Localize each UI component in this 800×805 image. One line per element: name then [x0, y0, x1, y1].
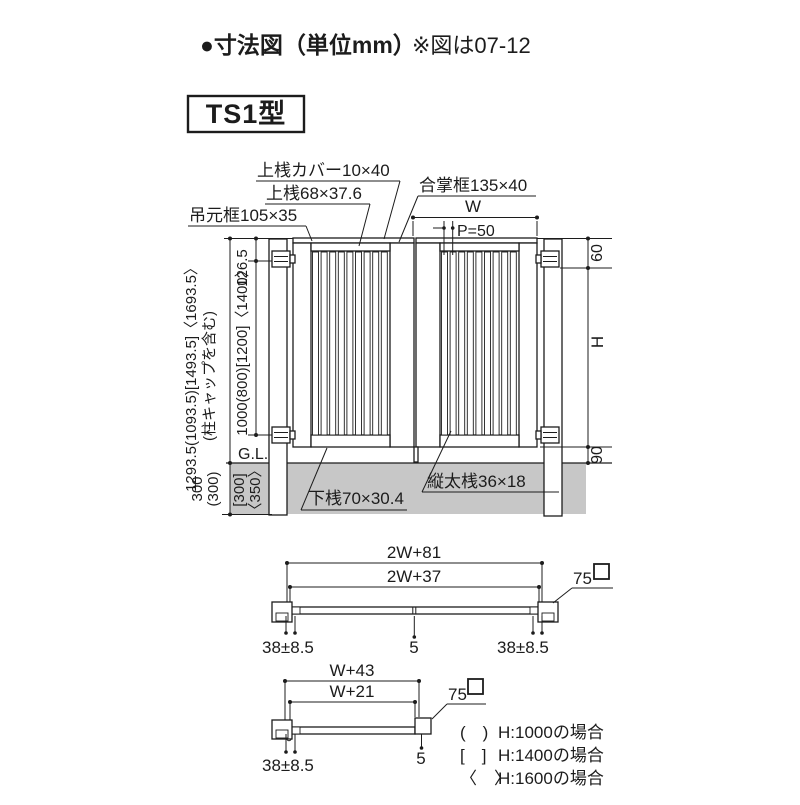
label-top-rail: 上桟68×37.6	[266, 184, 362, 203]
center-drop-rod	[414, 447, 418, 462]
dimension-drawing-page: ●寸法図（単位mm） ※図は07-12 TS1型	[0, 0, 800, 800]
legend-row3-label: H:1600の場合	[498, 769, 604, 788]
post-section-symbol-single	[468, 679, 483, 694]
dim-leaf-width: W	[465, 197, 481, 216]
dimension-diagram-svg: ●寸法図（単位mm） ※図は07-12 TS1型	[0, 0, 800, 800]
dim-single-gap-left: 38±8.5	[262, 756, 314, 775]
hinge-upper-right	[536, 251, 559, 267]
title-main: ●寸法図（単位mm）	[200, 32, 416, 58]
dim-height: H	[588, 336, 607, 348]
dim-top-offset: 60	[589, 244, 606, 262]
left-bottom-rail	[311, 435, 390, 447]
plan-view-double: 2W+81 2W+37 75 38±8.5 5	[262, 543, 613, 657]
label-top-rail-cover: 上桟カバー10×40	[257, 161, 390, 180]
left-dimensions: 1293.5(1093.5)[1493.5]〈1693.5〉 (柱キャップを含む…	[183, 237, 272, 518]
hinge-lower-left	[272, 427, 295, 443]
hinge-upper-left	[272, 251, 295, 267]
right-post	[544, 239, 562, 516]
dim-embed-d: 〈350〉	[247, 462, 264, 517]
label-vertical-bar: 縦太桟36×18	[427, 472, 526, 491]
model-label: TS1型	[206, 99, 287, 129]
dim-single-inner: W+21	[330, 682, 375, 701]
dim-single-outer: W+43	[330, 661, 375, 680]
right-bottom-rail	[440, 435, 519, 447]
plan-view-single: W+43 W+21 75 5 38±8.5	[262, 661, 486, 775]
dim-embed-c: [300]	[231, 473, 248, 506]
post-section-symbol-double	[594, 564, 609, 579]
dim-double-gap-right: 38±8.5	[497, 638, 549, 657]
dim-double-inner: 2W+37	[387, 567, 441, 586]
dim-embed-b: (300)	[205, 471, 222, 506]
right-hinge-stile	[519, 243, 537, 447]
dim-double-outer: 2W+81	[387, 543, 441, 562]
label-bottom-rail: 下桟70×30.4	[308, 489, 404, 508]
hinge-lower-right	[536, 427, 559, 443]
dim-double-gap-center: 5	[409, 638, 418, 657]
right-gate-leaf	[416, 238, 537, 447]
dim-single-gap-right: 5	[416, 749, 425, 768]
dim-bottom-clearance: 90	[589, 446, 606, 464]
dim-overall-height: 1293.5(1093.5)[1493.5]〈1693.5〉	[183, 260, 200, 492]
dim-overall-height-note: (柱キャップを含む)	[201, 311, 218, 441]
label-hinge-stile: 吊元框105×35	[189, 206, 297, 225]
left-hinge-stile	[293, 243, 311, 447]
left-slats	[313, 252, 388, 435]
plan-single-gate-bar	[292, 727, 415, 734]
dim-double-post: 75	[573, 569, 592, 588]
dim-double-gap-left: 38±8.5	[262, 638, 314, 657]
left-post	[269, 239, 287, 515]
page-title: ●寸法図（単位mm） ※図は07-12	[200, 32, 531, 58]
dim-hinge-span: 1000(800)[1200]〈1400〉	[234, 262, 251, 435]
right-meeting-stile	[416, 243, 440, 447]
model-box: TS1型	[188, 96, 304, 132]
legend-row2-bracket: [ ]	[460, 746, 486, 765]
right-top-rail	[440, 243, 519, 251]
legend-row1-bracket: ( )	[460, 723, 488, 742]
plan-single-right-post	[415, 718, 431, 734]
bracket-legend: ( ) H:1000の場合 [ ] H:1400の場合 〈 〉 H:1600の場…	[460, 723, 604, 788]
legend-row2-label: H:1400の場合	[498, 746, 604, 765]
dim-single-post: 75	[448, 685, 467, 704]
dim-pitch: P=50	[457, 223, 495, 240]
elevation-view: 1293.5(1093.5)[1493.5]〈1693.5〉 (柱キャップを含む…	[183, 161, 612, 518]
label-meeting-stile: 合掌框135×40	[419, 176, 527, 195]
dim-embed-a: 300	[189, 476, 206, 501]
left-gate-leaf	[293, 238, 414, 447]
right-slats	[442, 252, 517, 435]
ground-level-label: G.L.	[238, 446, 268, 463]
plan-double-gate-bar	[292, 607, 538, 614]
legend-row1-label: H:1000の場合	[498, 723, 604, 742]
left-top-rail	[311, 243, 390, 251]
left-meeting-stile	[390, 243, 414, 447]
title-note: ※図は07-12	[412, 33, 531, 58]
